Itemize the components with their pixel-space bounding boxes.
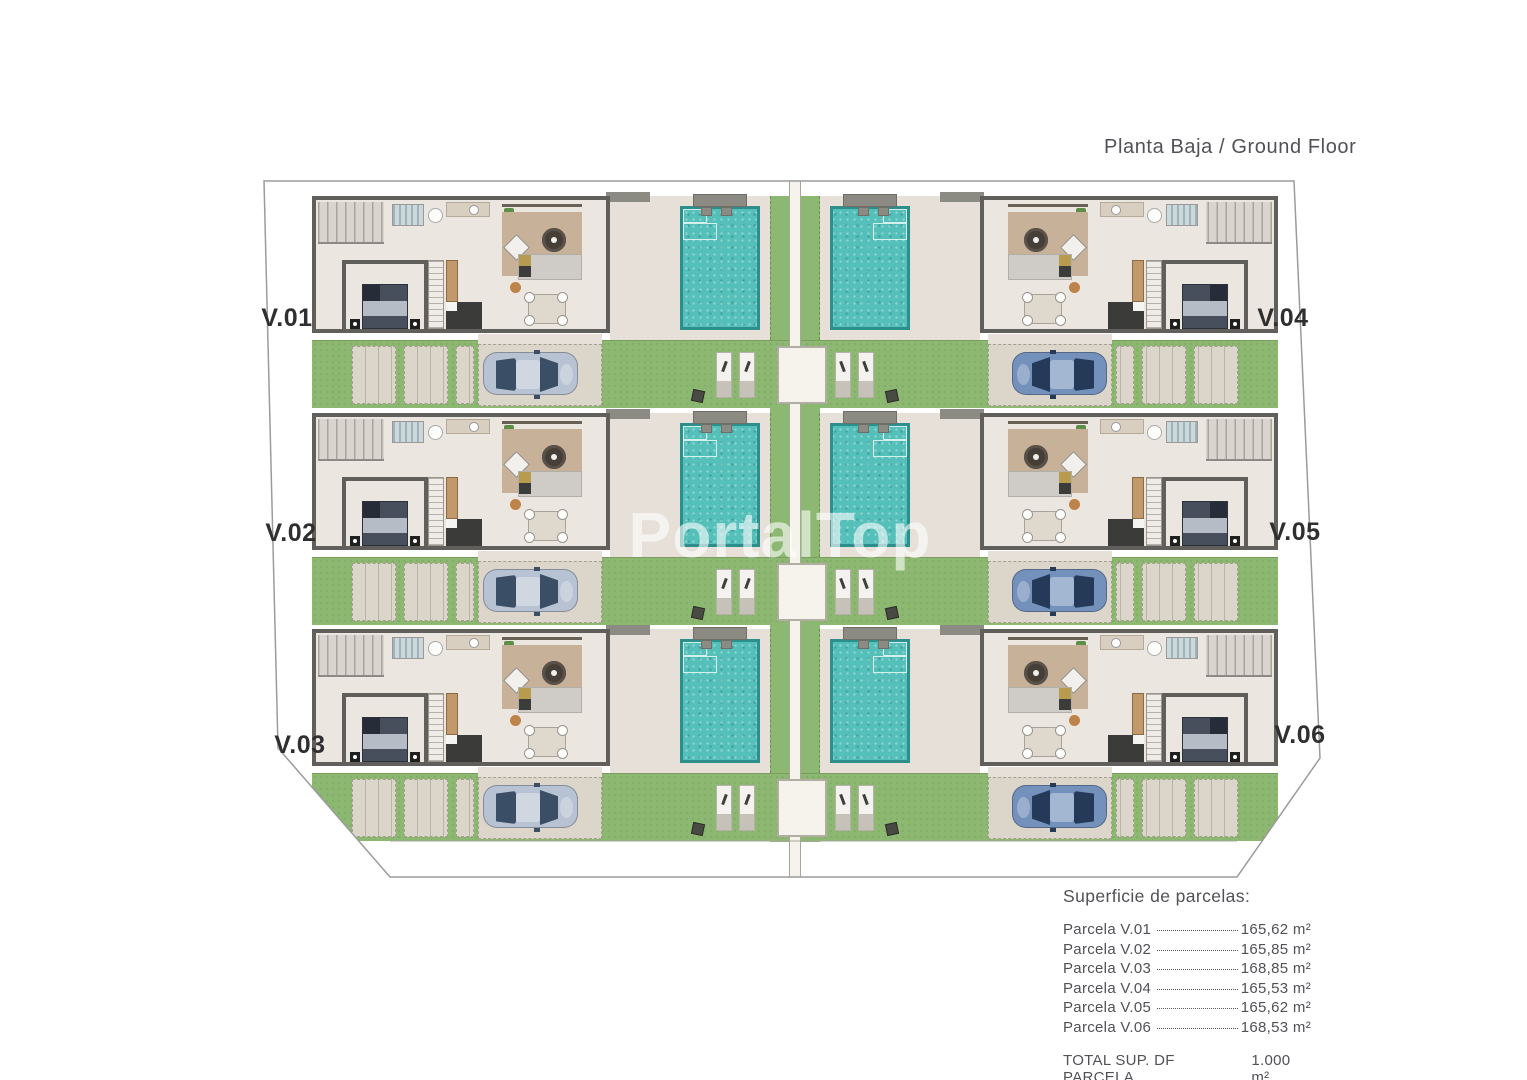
legend-row-label: Parcela V.02: [1063, 941, 1151, 958]
kitchen-cabinet: [1108, 519, 1144, 546]
side-table: [885, 606, 899, 620]
car-mirror: [534, 395, 540, 399]
bathroom-counter: [446, 419, 490, 434]
porch-wall: [606, 625, 650, 635]
wardrobe: [1132, 693, 1144, 735]
shower: [392, 637, 424, 659]
kitchen-cabinet: [446, 302, 482, 329]
plant: [510, 499, 521, 510]
plant: [1069, 499, 1080, 510]
staircase: [318, 419, 384, 461]
garden-center-strip: [801, 413, 820, 557]
villa-unit-v04: [801, 196, 1278, 411]
car-hood: [560, 364, 573, 385]
dining-chair: [557, 292, 568, 303]
nightstand: [1170, 536, 1180, 546]
garden-center-strip: [801, 196, 820, 340]
coffee-table: [1024, 228, 1048, 252]
cushion: [1059, 688, 1071, 699]
pillow: [363, 293, 380, 301]
page-title: Planta Baja / Ground Floor: [1104, 136, 1356, 159]
staircase: [318, 202, 384, 244]
pool-step: [683, 223, 717, 240]
dining-chair: [1055, 292, 1066, 303]
swimming-pool: [680, 423, 760, 547]
car-top-view: [483, 785, 578, 828]
nightstand: [1230, 752, 1240, 762]
dining-chair: [1022, 509, 1033, 520]
coffee-table: [1024, 661, 1048, 685]
bathroom-counter: [446, 202, 490, 217]
legend-total-label: TOTAL SUP. DF PARCELA: [1063, 1052, 1244, 1080]
car-top-view: [483, 352, 578, 395]
nightstand: [410, 752, 420, 762]
legend-total-value: 1.000 m²: [1251, 1052, 1311, 1080]
kitchen-sink: [446, 519, 457, 528]
walkway-pad: [777, 563, 827, 621]
sun-lounger: [835, 352, 851, 398]
swimming-pool: [680, 639, 760, 763]
legend-row-value: 165,85 m²: [1241, 941, 1311, 958]
swimming-pool: [830, 206, 910, 330]
nightstand: [1170, 752, 1180, 762]
bathroom-counter: [1100, 202, 1144, 217]
dot-leader: [1157, 950, 1238, 951]
cushion: [519, 472, 531, 483]
pool-deck-block: [843, 194, 897, 207]
paved-pad: [456, 779, 474, 837]
cushion: [1059, 483, 1071, 494]
dining-chair: [1022, 292, 1033, 303]
pool-ladder: [878, 424, 889, 433]
shower: [1166, 637, 1198, 659]
bedroom-wall: [1162, 260, 1248, 264]
driveway: [988, 334, 1112, 344]
paved-pad: [1142, 346, 1186, 404]
shower: [1166, 204, 1198, 226]
car-roof: [1050, 793, 1074, 822]
nightstand: [410, 319, 420, 329]
legend-row-value: 165,62 m²: [1241, 999, 1311, 1016]
washbasin: [1111, 205, 1121, 215]
nightstand: [350, 752, 360, 762]
wardrobe: [1132, 477, 1144, 519]
villa-unit-v03: [312, 629, 789, 844]
plant: [510, 715, 521, 726]
washbasin: [469, 638, 479, 648]
sun-lounger: [858, 352, 874, 398]
car-windshield: [540, 790, 558, 825]
tv-console: [502, 204, 582, 207]
plant: [510, 282, 521, 293]
car-mirror: [1050, 783, 1056, 787]
paved-pad: [456, 563, 474, 621]
kitchen-cabinet: [446, 735, 482, 762]
legend-row-value: 168,53 m²: [1241, 1019, 1311, 1036]
swimming-pool: [830, 423, 910, 547]
legend-row-label: Parcela V.06: [1063, 1019, 1151, 1036]
car-rear-window: [1074, 575, 1094, 608]
wardrobe: [446, 260, 458, 302]
car-mirror: [534, 567, 540, 571]
staircase: [318, 635, 384, 677]
dining-chair: [524, 532, 535, 543]
staircase: [1206, 635, 1272, 677]
car-top-view: [1012, 569, 1107, 612]
toilet: [428, 641, 443, 656]
sun-lounger: [739, 352, 755, 398]
washbasin: [1111, 422, 1121, 432]
wardrobe: [428, 477, 444, 546]
paved-pad: [1194, 563, 1238, 621]
bed: [362, 501, 408, 546]
dining-chair: [524, 725, 535, 736]
car-top-view: [1012, 352, 1107, 395]
villa-label-v02: V.02: [260, 519, 322, 548]
pool-step: [873, 223, 907, 240]
kitchen-sink: [1133, 519, 1144, 528]
dot-leader: [1157, 969, 1238, 970]
paved-pad: [352, 779, 396, 837]
coffee-table: [542, 661, 566, 685]
villa-label-v06: V.06: [1269, 721, 1331, 750]
walkway-pad: [777, 346, 827, 404]
pool-deck-block: [693, 194, 747, 207]
cushion: [519, 699, 531, 710]
car-hood: [1017, 364, 1030, 385]
pool-deck-block: [843, 627, 897, 640]
porch-wall: [940, 192, 984, 202]
tv-console: [1008, 637, 1088, 640]
dining-chair: [1022, 532, 1033, 543]
dining-chair: [1055, 532, 1066, 543]
car-hood: [1017, 581, 1030, 602]
bedroom-wall: [1162, 477, 1166, 546]
paved-pad: [404, 563, 448, 621]
washbasin: [1111, 638, 1121, 648]
pillow: [363, 726, 380, 734]
sofa: [518, 687, 582, 713]
bedroom-wall: [342, 693, 346, 762]
pool-deck-block: [693, 411, 747, 424]
legend-row: Parcela V.01 165,62 m²: [1063, 921, 1311, 941]
villa-house: [312, 629, 610, 766]
tv-console: [1008, 204, 1088, 207]
villa-unit-v01: [312, 196, 789, 411]
paved-pad: [456, 346, 474, 404]
dot-leader: [1157, 1008, 1238, 1009]
sun-lounger: [739, 569, 755, 615]
legend-total: TOTAL SUP. DF PARCELA 1.000 m²: [1063, 1052, 1311, 1080]
bedroom-wall: [1244, 260, 1248, 329]
driveway: [478, 767, 602, 777]
garden-center-strip: [801, 629, 820, 773]
driveway: [988, 551, 1112, 561]
shower: [1166, 421, 1198, 443]
pillow: [363, 510, 380, 518]
driveway: [478, 334, 602, 344]
wardrobe: [1146, 693, 1162, 762]
car-roof: [1050, 360, 1074, 389]
pool-ladder: [721, 207, 732, 216]
paved-pad: [1116, 563, 1134, 621]
walkway-pad: [777, 779, 827, 837]
dining-chair: [1055, 725, 1066, 736]
kitchen-cabinet: [1108, 302, 1144, 329]
legend-row-label: Parcela V.03: [1063, 960, 1151, 977]
legend: Superficie de parcelas: Parcela V.01 165…: [1063, 886, 1311, 1080]
bathroom-counter: [446, 635, 490, 650]
car-mirror: [534, 350, 540, 354]
dining-chair: [524, 315, 535, 326]
garden-center-strip: [770, 629, 789, 773]
porch-wall: [940, 625, 984, 635]
bed: [1182, 501, 1228, 546]
staircase: [1206, 202, 1272, 244]
bedroom-wall: [342, 260, 346, 329]
dining-chair: [1022, 315, 1033, 326]
bed-sheet: [1183, 301, 1227, 316]
legend-row-value: 165,62 m²: [1241, 921, 1311, 938]
paved-pad: [404, 779, 448, 837]
porch-wall: [940, 409, 984, 419]
villa-label-v04: V.04: [1252, 304, 1314, 333]
cushion: [1059, 699, 1071, 710]
pillow: [1210, 285, 1227, 293]
pool-step: [873, 656, 907, 673]
tv-console: [502, 637, 582, 640]
coffee-table: [1024, 445, 1048, 469]
dining-chair: [557, 509, 568, 520]
bed: [362, 284, 408, 329]
porch-wall: [606, 409, 650, 419]
central-walkway: [789, 181, 801, 877]
bedroom-wall: [342, 260, 428, 264]
bedroom-wall: [1162, 260, 1166, 329]
villa-label-v03: V.03: [269, 731, 331, 760]
bedroom-wall: [342, 477, 428, 481]
car-top-view: [1012, 785, 1107, 828]
bedroom-wall: [1162, 693, 1166, 762]
car-mirror: [1050, 612, 1056, 616]
kitchen-cabinet: [1108, 735, 1144, 762]
swimming-pool: [830, 639, 910, 763]
car-mirror: [1050, 567, 1056, 571]
sofa: [518, 471, 582, 497]
sofa: [1008, 471, 1072, 497]
villa-house: [980, 629, 1278, 766]
staircase: [1206, 419, 1272, 461]
villa-label-v01: V.01: [256, 304, 318, 333]
bedroom-wall: [1162, 477, 1248, 481]
car-hood: [560, 797, 573, 818]
pool-deck-block: [693, 627, 747, 640]
bathroom-counter: [1100, 419, 1144, 434]
villa-unit-v02: [312, 413, 789, 628]
nightstand: [410, 536, 420, 546]
pool-ladder: [858, 424, 869, 433]
sun-lounger: [858, 569, 874, 615]
sofa: [1008, 687, 1072, 713]
porch-wall: [606, 192, 650, 202]
coffee-table: [542, 445, 566, 469]
car-roof: [516, 577, 540, 606]
dot-leader: [1157, 930, 1238, 931]
pool-ladder: [878, 207, 889, 216]
nightstand: [350, 319, 360, 329]
car-roof: [516, 793, 540, 822]
car-mirror: [534, 828, 540, 832]
car-rear-window: [496, 575, 516, 608]
garden-center-strip: [770, 196, 789, 340]
car-top-view: [483, 569, 578, 612]
dining-chair: [524, 748, 535, 759]
cushion: [519, 255, 531, 266]
nightstand: [1230, 536, 1240, 546]
side-table: [885, 822, 899, 836]
legend-row: Parcela V.02 165,85 m²: [1063, 941, 1311, 961]
sofa: [518, 254, 582, 280]
wardrobe: [428, 693, 444, 762]
paved-pad: [1142, 563, 1186, 621]
dot-leader: [1157, 989, 1238, 990]
villa-label-v05: V.05: [1264, 518, 1326, 547]
dining-chair: [1022, 748, 1033, 759]
legend-row: Parcela V.05 165,62 m²: [1063, 999, 1311, 1019]
pool-ladder: [721, 424, 732, 433]
bedroom-wall: [342, 477, 346, 546]
cushion: [519, 266, 531, 277]
paved-pad: [1194, 346, 1238, 404]
shower: [392, 421, 424, 443]
paved-pad: [352, 563, 396, 621]
side-table: [691, 389, 705, 403]
wardrobe: [1146, 477, 1162, 546]
bedroom-wall: [1244, 477, 1248, 546]
car-hood: [1017, 797, 1030, 818]
toilet: [1147, 641, 1162, 656]
coffee-table: [542, 228, 566, 252]
bedroom-wall: [342, 693, 428, 697]
car-windshield: [1032, 574, 1050, 609]
cushion: [1059, 472, 1071, 483]
plant: [1069, 715, 1080, 726]
car-mirror: [534, 612, 540, 616]
bed: [362, 717, 408, 762]
pool-step: [873, 440, 907, 457]
sun-lounger: [739, 785, 755, 831]
dining-chair: [557, 725, 568, 736]
paved-pad: [1116, 779, 1134, 837]
cushion: [1059, 266, 1071, 277]
dining-chair: [1022, 725, 1033, 736]
washbasin: [469, 422, 479, 432]
pool-ladder: [701, 424, 712, 433]
sun-lounger: [835, 569, 851, 615]
bed: [1182, 284, 1228, 329]
bed-sheet: [363, 518, 407, 533]
cushion: [519, 483, 531, 494]
pillow: [1210, 502, 1227, 510]
car-hood: [560, 581, 573, 602]
pool-ladder: [858, 640, 869, 649]
paved-pad: [1194, 779, 1238, 837]
legend-row-value: 165,53 m²: [1241, 980, 1311, 997]
legend-row-label: Parcela V.04: [1063, 980, 1151, 997]
nightstand: [1230, 319, 1240, 329]
wardrobe: [1146, 260, 1162, 329]
cushion: [1059, 255, 1071, 266]
toilet: [428, 208, 443, 223]
car-mirror: [1050, 828, 1056, 832]
car-rear-window: [1074, 791, 1094, 824]
sun-lounger: [716, 785, 732, 831]
pool-step: [683, 440, 717, 457]
toilet: [1147, 425, 1162, 440]
car-windshield: [1032, 790, 1050, 825]
car-windshield: [540, 574, 558, 609]
shower: [392, 204, 424, 226]
toilet: [1147, 208, 1162, 223]
car-windshield: [1032, 357, 1050, 392]
dining-chair: [557, 532, 568, 543]
bedroom-wall: [1244, 693, 1248, 762]
legend-row: Parcela V.04 165,53 m²: [1063, 980, 1311, 1000]
sofa: [1008, 254, 1072, 280]
pillow: [1210, 726, 1227, 734]
nightstand: [350, 536, 360, 546]
dining-chair: [524, 292, 535, 303]
villa-unit-v05: [801, 413, 1278, 628]
wardrobe: [428, 260, 444, 329]
pillow: [363, 718, 380, 726]
nightstand: [1170, 319, 1180, 329]
side-table: [691, 606, 705, 620]
swimming-pool: [680, 206, 760, 330]
dining-chair: [1055, 315, 1066, 326]
driveway: [478, 551, 602, 561]
villa-house: [312, 196, 610, 333]
villa-unit-v06: [801, 629, 1278, 844]
car-roof: [1050, 577, 1074, 606]
garden-center-strip: [770, 413, 789, 557]
bed-sheet: [363, 301, 407, 316]
driveway: [988, 767, 1112, 777]
paved-pad: [1116, 346, 1134, 404]
bed-sheet: [363, 734, 407, 749]
legend-row-label: Parcela V.05: [1063, 999, 1151, 1016]
pool-ladder: [721, 640, 732, 649]
cushion: [519, 688, 531, 699]
car-rear-window: [496, 358, 516, 391]
bed: [1182, 717, 1228, 762]
sun-lounger: [858, 785, 874, 831]
dining-chair: [1055, 509, 1066, 520]
dining-chair: [1055, 748, 1066, 759]
dining-chair: [524, 509, 535, 520]
kitchen-sink: [1133, 302, 1144, 311]
wardrobe: [446, 693, 458, 735]
villa-house: [980, 413, 1278, 550]
car-mirror: [1050, 395, 1056, 399]
dot-leader: [1157, 1028, 1238, 1029]
pillow: [1210, 718, 1227, 726]
paved-pad: [352, 346, 396, 404]
kitchen-cabinet: [446, 519, 482, 546]
sun-lounger: [716, 569, 732, 615]
wardrobe: [1132, 260, 1144, 302]
legend-row: Parcela V.03 168,85 m²: [1063, 960, 1311, 980]
